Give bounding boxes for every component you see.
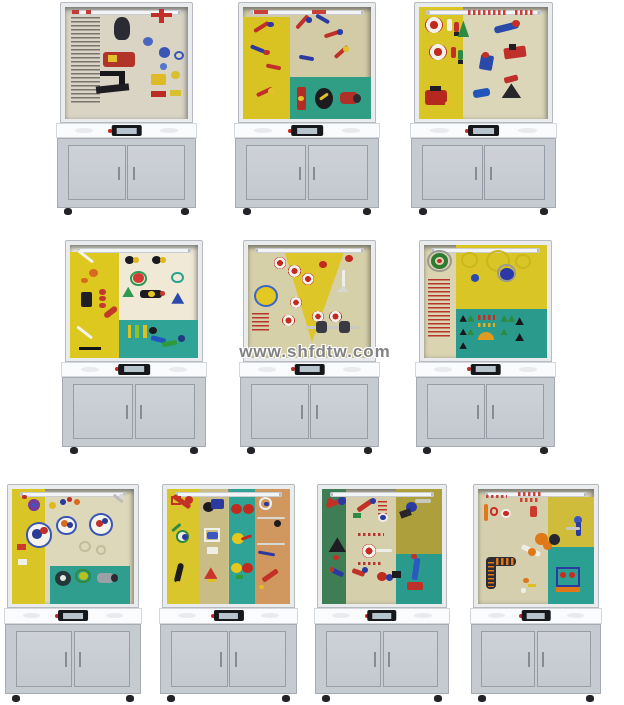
cabinet-base	[62, 377, 205, 447]
model-item	[501, 509, 510, 518]
model-item	[160, 291, 165, 296]
display-case	[60, 2, 194, 123]
model-item	[160, 257, 166, 263]
model-item	[102, 518, 108, 524]
cabinet-door-right	[383, 631, 439, 687]
door-area	[251, 384, 368, 439]
door-handle	[126, 405, 128, 419]
model-item	[267, 22, 273, 28]
cabinet-door-right	[486, 384, 544, 439]
cabinet-door-right	[229, 631, 286, 687]
model-item	[566, 527, 580, 530]
model-item	[18, 559, 26, 565]
caster-wheel	[434, 695, 442, 702]
model-item	[458, 60, 463, 64]
lcd-display	[58, 610, 88, 621]
model-item	[114, 17, 130, 39]
door-handle	[313, 167, 315, 181]
cabinet-door-left	[422, 145, 482, 200]
model-item	[486, 495, 507, 498]
model-item	[358, 533, 384, 536]
model-item	[520, 498, 538, 501]
vent-right	[160, 128, 178, 133]
model-item	[339, 321, 350, 333]
display-case	[473, 484, 598, 608]
door-handle	[475, 167, 477, 181]
model-item	[362, 567, 368, 573]
door-area	[326, 631, 439, 687]
lcd-screen	[117, 128, 137, 134]
model-item	[306, 17, 312, 23]
model-item	[312, 10, 326, 13]
model-item	[468, 10, 507, 14]
model-item	[353, 513, 360, 518]
caster-wheel	[540, 208, 548, 215]
model-item	[362, 544, 376, 558]
watermark: www.shfdtw.com	[190, 342, 440, 362]
control-console	[159, 608, 298, 623]
door-area	[68, 145, 185, 200]
door-area	[481, 631, 591, 687]
cabinet-base	[240, 377, 378, 447]
model-item	[264, 502, 269, 507]
model-item	[171, 292, 184, 303]
caster-wheel	[364, 447, 372, 454]
color-panel	[70, 252, 119, 358]
cabinet-door-left	[326, 631, 382, 687]
control-console	[415, 362, 556, 377]
vent-left	[430, 128, 449, 133]
model-item	[290, 297, 302, 308]
model-item	[79, 541, 91, 553]
model-item	[74, 499, 80, 505]
lcd-display	[291, 125, 323, 136]
model-item	[556, 587, 580, 592]
vent-left	[23, 613, 41, 618]
model-item	[490, 507, 498, 515]
vent-right	[414, 613, 431, 618]
control-console	[239, 362, 380, 377]
lcd-display	[213, 610, 243, 621]
cabinet-01	[56, 2, 197, 215]
door-handle	[140, 405, 142, 419]
cabinet-04	[61, 240, 207, 454]
cabinet-base	[411, 138, 555, 207]
caster-wheel	[64, 208, 72, 215]
model-item	[454, 32, 459, 36]
door-handle	[490, 167, 492, 181]
model-item	[49, 502, 56, 509]
vent-left	[332, 613, 349, 618]
display-case	[317, 484, 446, 608]
control-console	[4, 608, 142, 623]
model-item	[530, 506, 537, 516]
cabinet-base	[160, 624, 296, 695]
display-board	[167, 489, 289, 604]
model-item	[160, 63, 167, 70]
model-item	[337, 286, 349, 293]
door-area	[246, 145, 367, 200]
caster-wheel	[70, 447, 78, 454]
model-item	[428, 279, 449, 338]
caster-wheel	[282, 695, 290, 702]
model-item	[81, 278, 87, 284]
model-item	[259, 585, 264, 590]
lcd-display	[367, 610, 396, 621]
cabinet-base	[235, 138, 378, 207]
model-item	[337, 29, 343, 35]
vent-right	[343, 367, 361, 372]
product-photo-collage: www.shfdtw.com	[0, 0, 624, 705]
model-item	[148, 291, 154, 297]
model-item	[560, 572, 566, 578]
display-board	[478, 489, 593, 604]
model-item	[159, 47, 170, 57]
model-item	[500, 268, 514, 280]
caster-wheel	[423, 447, 431, 454]
model-item	[79, 347, 101, 350]
model-item	[482, 52, 488, 58]
model-item	[122, 287, 134, 297]
lcd-screen	[373, 613, 392, 619]
model-item	[392, 571, 402, 578]
vent-right	[519, 367, 537, 372]
door-handle	[374, 652, 376, 666]
door-handle	[220, 652, 222, 666]
cabinet-base	[57, 138, 195, 207]
model-item	[170, 90, 181, 96]
lcd-screen	[473, 128, 493, 134]
model-item	[458, 50, 463, 60]
model-item	[305, 326, 360, 328]
model-item	[89, 269, 98, 277]
control-console	[56, 123, 197, 138]
vent-left	[178, 613, 196, 618]
caster-wheel	[167, 695, 175, 702]
vent-right	[567, 613, 584, 618]
caster-wheel	[363, 208, 371, 215]
lcd-display	[470, 364, 501, 375]
model-item	[151, 74, 166, 84]
model-item	[353, 94, 361, 103]
door-area	[73, 384, 194, 439]
model-item	[174, 51, 184, 60]
model-item	[86, 10, 91, 13]
model-item	[171, 272, 184, 283]
display-board	[65, 7, 189, 119]
caster-wheel	[419, 208, 427, 215]
control-console	[410, 123, 557, 138]
door-handle	[301, 405, 303, 419]
model-item	[502, 83, 521, 98]
model-item	[378, 513, 388, 522]
vent-right	[518, 128, 537, 133]
caster-wheel	[540, 447, 548, 454]
model-item	[151, 91, 166, 97]
model-item	[316, 321, 327, 333]
display-case	[414, 2, 554, 123]
lcd-display	[118, 364, 150, 375]
fluorescent-lamp	[330, 492, 435, 497]
lcd-display	[111, 125, 142, 136]
model-item	[447, 19, 452, 30]
lcd-screen	[124, 366, 144, 372]
model-item	[425, 90, 447, 105]
model-item	[512, 20, 520, 27]
model-item	[81, 292, 91, 307]
vent-left	[254, 128, 273, 133]
cabinet-09	[314, 484, 450, 702]
display-case	[238, 2, 377, 123]
cabinet-door-left	[171, 631, 228, 687]
model-item	[79, 572, 87, 580]
model-item	[236, 575, 243, 578]
caster-wheel	[586, 695, 594, 702]
lcd-display	[468, 125, 500, 136]
model-item	[175, 581, 181, 587]
model-item	[231, 563, 242, 573]
display-case	[162, 484, 294, 608]
lcd-screen	[297, 128, 317, 134]
model-item	[473, 88, 491, 99]
caster-wheel	[247, 447, 255, 454]
caster-wheel	[190, 447, 198, 454]
model-item	[299, 55, 315, 62]
cabinet-door-right	[310, 384, 368, 439]
control-console	[314, 608, 450, 623]
cabinet-door-left	[251, 384, 309, 439]
model-item	[345, 255, 352, 262]
model-item	[488, 562, 495, 587]
caster-wheel	[126, 695, 134, 702]
model-item	[515, 10, 536, 14]
cabinet-base	[471, 624, 600, 695]
model-item	[429, 44, 447, 60]
cabinet-base	[315, 624, 448, 695]
cabinet-door-left	[427, 384, 485, 439]
model-item	[242, 563, 253, 573]
model-item	[257, 517, 285, 519]
model-item	[254, 285, 279, 308]
model-item	[445, 101, 451, 107]
model-item	[430, 86, 440, 92]
control-console	[470, 608, 602, 623]
model-item	[425, 17, 443, 33]
fluorescent-lamp	[255, 248, 364, 253]
model-item	[528, 584, 536, 587]
lcd-display	[294, 364, 325, 375]
display-board	[322, 489, 441, 604]
cabinet-door-right	[127, 145, 185, 200]
display-board	[70, 245, 199, 358]
model-item	[282, 315, 294, 326]
model-item	[274, 520, 281, 527]
control-console	[61, 362, 207, 377]
door-handle	[133, 167, 135, 181]
door-handle	[316, 405, 318, 419]
fluorescent-lamp	[77, 248, 190, 253]
color-panel	[243, 17, 291, 119]
model-item	[207, 547, 218, 554]
caster-wheel	[322, 695, 330, 702]
cabinet-02	[234, 2, 380, 215]
model-item	[451, 47, 456, 57]
vent-left	[81, 367, 100, 372]
model-item	[370, 498, 376, 504]
cabinet-door-left	[68, 145, 126, 200]
fluorescent-lamp	[20, 492, 127, 497]
display-board	[12, 489, 133, 604]
model-item	[171, 71, 180, 79]
model-item	[40, 527, 47, 534]
cabinet-door-right	[74, 631, 131, 687]
model-item	[343, 46, 349, 52]
model-item	[133, 257, 139, 263]
model-item	[254, 10, 268, 13]
door-handle	[388, 652, 390, 666]
lcd-screen	[300, 366, 320, 372]
model-item	[60, 575, 66, 581]
vent-left	[75, 128, 93, 133]
display-case	[65, 240, 204, 362]
model-item	[108, 55, 117, 62]
door-handle	[528, 652, 530, 666]
vent-right	[261, 613, 279, 618]
model-item	[569, 572, 575, 578]
vent-right	[106, 613, 124, 618]
model-item	[99, 289, 105, 295]
display-board	[243, 7, 372, 119]
lcd-display	[522, 610, 551, 621]
model-item	[342, 270, 346, 287]
cabinet-base	[416, 377, 554, 447]
cabinet-base	[5, 624, 140, 695]
cabinet-door-left	[481, 631, 535, 687]
door-area	[16, 631, 131, 687]
model-item	[252, 313, 268, 331]
model-item	[185, 496, 194, 504]
model-item	[17, 544, 25, 550]
model-item	[478, 315, 495, 320]
lcd-screen	[527, 613, 545, 619]
model-item	[143, 325, 147, 337]
model-item	[509, 44, 515, 50]
model-item	[60, 499, 66, 505]
model-item	[135, 325, 139, 337]
model-item	[143, 37, 153, 46]
door-handle	[79, 652, 81, 666]
control-console	[234, 123, 380, 138]
vent-left	[258, 367, 276, 372]
caster-wheel	[12, 695, 20, 702]
model-item	[32, 503, 37, 508]
model-item	[128, 325, 132, 337]
display-case	[7, 484, 138, 608]
model-item	[302, 273, 314, 284]
model-item	[288, 265, 300, 276]
cabinet-03	[410, 2, 557, 215]
model-item	[159, 9, 164, 22]
vent-left	[488, 613, 505, 618]
display-board	[419, 7, 549, 119]
model-item	[211, 499, 223, 508]
model-item	[376, 549, 391, 552]
cabinet-door-right	[308, 145, 368, 200]
cabinet-08	[159, 484, 298, 702]
caster-wheel	[181, 208, 189, 215]
door-handle	[477, 405, 479, 419]
door-handle	[492, 405, 494, 419]
vent-right	[342, 128, 361, 133]
model-item	[461, 252, 478, 268]
cabinet-10	[470, 484, 602, 702]
model-item	[437, 259, 442, 264]
model-item	[263, 50, 269, 56]
cabinet-07	[4, 484, 142, 702]
model-item	[518, 492, 543, 495]
model-item	[411, 554, 417, 560]
door-handle	[118, 167, 120, 181]
model-item	[208, 579, 215, 582]
model-item	[329, 311, 341, 322]
model-item	[504, 74, 519, 83]
model-item	[99, 303, 105, 309]
model-item	[319, 261, 326, 268]
cabinet-door-right	[484, 145, 544, 200]
model-item	[478, 323, 495, 328]
model-item	[358, 562, 382, 565]
door-handle	[65, 652, 67, 666]
model-item	[119, 494, 125, 500]
model-item	[67, 497, 72, 502]
model-item	[182, 534, 188, 540]
cabinet-door-left	[16, 631, 73, 687]
model-item	[521, 588, 526, 593]
door-area	[422, 145, 544, 200]
lcd-screen	[476, 366, 496, 372]
model-item	[415, 499, 430, 502]
cabinet-door-right	[537, 631, 591, 687]
door-handle	[235, 652, 237, 666]
cabinet-door-left	[246, 145, 306, 200]
model-item	[274, 257, 286, 268]
model-item	[528, 548, 536, 556]
cabinet-door-left	[73, 384, 133, 439]
door-handle	[299, 167, 301, 181]
model-item	[484, 504, 487, 521]
vent-right	[169, 367, 188, 372]
cabinet-door-right	[135, 384, 195, 439]
vent-left	[434, 367, 452, 372]
caster-wheel	[478, 695, 486, 702]
lcd-screen	[219, 613, 238, 619]
model-item	[268, 88, 274, 94]
display-board	[424, 245, 548, 358]
model-item	[207, 532, 218, 539]
model-item	[556, 567, 580, 587]
model-item	[515, 254, 531, 269]
caster-wheel	[243, 208, 251, 215]
model-item	[454, 22, 459, 32]
model-item	[315, 14, 331, 26]
model-item	[96, 545, 106, 554]
door-area	[427, 384, 544, 439]
model-item	[72, 10, 79, 13]
door-area	[171, 631, 286, 687]
lcd-screen	[63, 613, 82, 619]
model-item	[407, 582, 422, 590]
door-handle	[542, 652, 544, 666]
